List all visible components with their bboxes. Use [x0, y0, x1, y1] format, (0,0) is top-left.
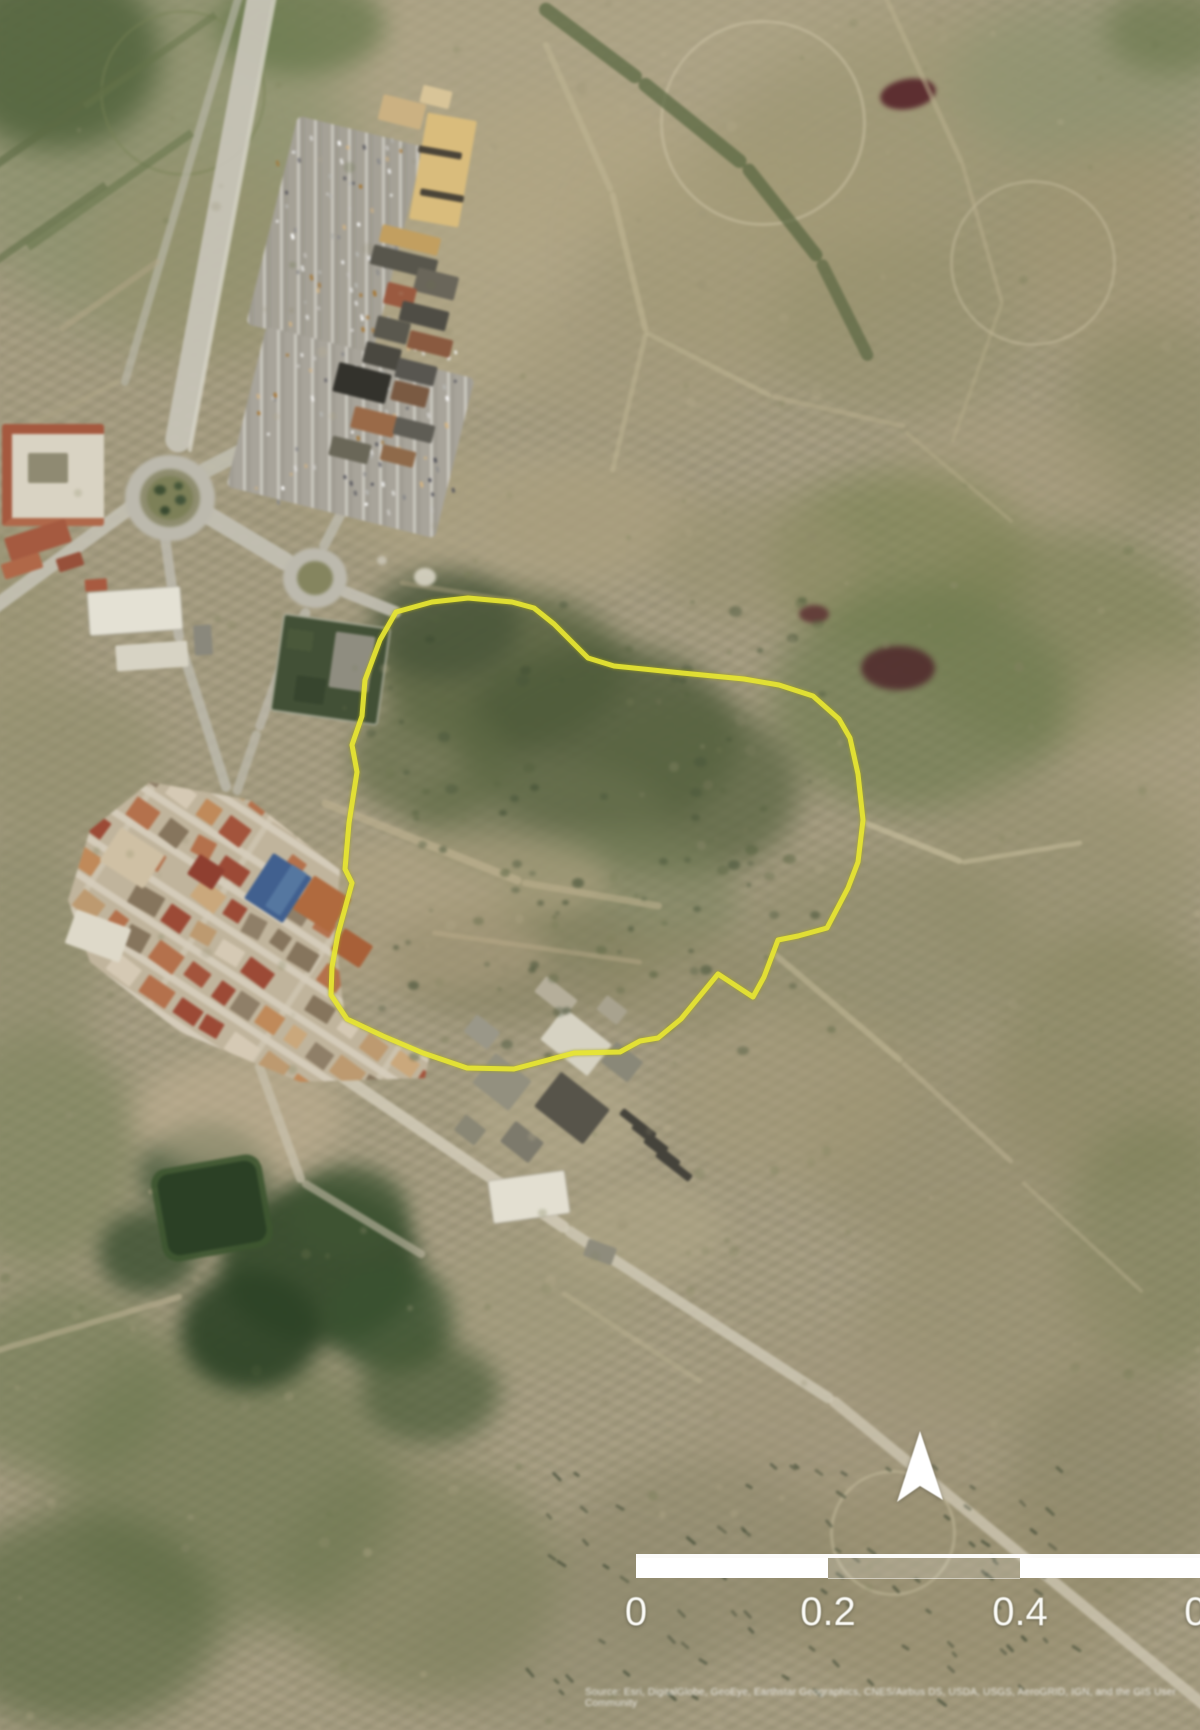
terrain-texture — [336, 1015, 361, 1040]
terrain-texture — [493, 781, 500, 787]
terrain-texture — [464, 570, 473, 579]
terrain-texture — [1189, 215, 1194, 220]
terrain-texture — [324, 378, 327, 383]
terrain-texture — [341, 14, 346, 19]
terrain-texture — [600, 925, 760, 1035]
terrain-texture — [291, 1574, 295, 1578]
terrain-texture — [175, 495, 186, 505]
terrain-texture — [735, 715, 746, 726]
terrain-texture — [176, 670, 180, 674]
terrain-texture — [251, 1365, 262, 1376]
terrain-texture — [17, 607, 20, 610]
terrain-texture — [562, 1437, 569, 1444]
terrain-texture — [351, 328, 354, 332]
terrain-texture — [506, 492, 512, 498]
scale-label: 0.6 — [1184, 1592, 1200, 1632]
terrain-texture — [10, 1176, 17, 1183]
terrain-texture — [233, 814, 236, 817]
terrain-texture — [162, 720, 166, 724]
terrain-texture — [147, 476, 193, 520]
terrain-texture — [737, 1046, 748, 1055]
terrain-texture — [656, 699, 662, 705]
terrain-texture — [520, 373, 525, 378]
terrain-texture — [272, 609, 282, 619]
terrain-texture — [360, 1227, 367, 1234]
terrain-texture — [497, 987, 502, 991]
terrain-texture — [764, 872, 774, 880]
terrain-texture — [835, 1102, 844, 1111]
terrain-texture — [685, 529, 693, 537]
terrain-texture — [601, 1396, 609, 1404]
terrain-texture — [85, 578, 108, 592]
terrain-texture — [439, 846, 447, 852]
terrain-texture — [157, 1651, 161, 1655]
terrain-texture — [158, 873, 162, 877]
terrain-texture — [441, 1036, 449, 1044]
terrain-texture — [837, 739, 844, 746]
terrain-texture — [861, 646, 935, 690]
terrain-texture — [502, 554, 505, 557]
terrain-texture — [917, 1589, 925, 1597]
terrain-texture — [156, 1507, 160, 1511]
terrain-texture — [343, 706, 346, 709]
terrain-texture — [536, 1699, 544, 1707]
terrain-texture — [849, 18, 858, 27]
terrain-texture — [606, 933, 616, 943]
terrain-texture — [659, 858, 668, 865]
terrain-texture — [363, 1548, 371, 1556]
terrain-texture — [537, 900, 544, 906]
terrain-texture — [770, 1616, 781, 1627]
terrain-texture — [974, 1509, 981, 1516]
terrain-texture — [370, 482, 373, 486]
terrain-texture — [409, 1052, 421, 1061]
terrain-texture — [102, 1199, 113, 1210]
terrain-texture — [418, 841, 427, 848]
terrain-texture — [87, 586, 184, 636]
terrain-texture — [779, 401, 785, 407]
terrain-texture — [757, 648, 763, 652]
terrain-texture — [715, 368, 721, 374]
terrain-texture — [752, 1638, 762, 1648]
terrain-texture — [781, 526, 788, 533]
terrain-texture — [697, 841, 705, 849]
terrain-texture — [812, 619, 824, 629]
terrain-texture — [1038, 1028, 1043, 1033]
terrain-texture — [712, 1716, 722, 1726]
terrain-texture — [180, 696, 184, 700]
terrain-texture — [377, 556, 387, 565]
terrain-texture — [769, 911, 779, 919]
terrain-texture — [61, 727, 65, 731]
terrain-texture — [730, 1510, 738, 1518]
terrain-texture — [18, 1596, 22, 1600]
terrain-texture — [477, 1709, 480, 1712]
terrain-texture — [216, 1019, 220, 1023]
terrain-texture — [1008, 999, 1018, 1009]
terrain-texture — [365, 490, 369, 495]
terrain-texture — [1159, 572, 1164, 577]
terrain-texture — [385, 145, 389, 151]
terrain-texture — [1097, 607, 1104, 614]
terrain-texture — [484, 1303, 491, 1310]
terrain-texture — [781, 1674, 791, 1681]
terrain-texture — [451, 1676, 455, 1680]
terrain-texture — [523, 763, 536, 773]
terrain-texture — [1057, 119, 1063, 125]
terrain-texture — [453, 46, 460, 53]
terrain-texture — [999, 835, 1005, 841]
terrain-texture — [293, 675, 326, 705]
terrain-texture — [592, 1132, 597, 1137]
terrain-texture — [276, 219, 279, 223]
terrain-texture — [1138, 787, 1147, 796]
terrain-texture — [366, 315, 369, 319]
terrain-texture — [211, 202, 220, 211]
terrain-texture — [694, 757, 707, 767]
terrain-texture — [1194, 1181, 1200, 1187]
terrain-texture — [510, 795, 519, 802]
terrain-texture — [929, 1196, 933, 1200]
terrain-texture — [861, 1344, 872, 1355]
terrain-texture — [327, 1682, 337, 1692]
terrain-texture — [380, 664, 389, 673]
terrain-texture — [369, 454, 373, 460]
terrain-texture — [296, 1685, 305, 1694]
terrain-texture — [1072, 1342, 1076, 1346]
terrain-texture — [414, 568, 436, 586]
terrain-texture — [317, 347, 327, 357]
terrain-texture — [284, 1392, 294, 1402]
terrain-texture — [690, 788, 701, 797]
terrain-texture — [649, 971, 658, 978]
terrain-texture — [1016, 831, 1019, 834]
terrain-texture — [345, 1054, 350, 1059]
terrain-texture — [789, 983, 797, 989]
terrain-texture — [93, 847, 101, 855]
terrain-texture — [501, 1040, 513, 1050]
terrain-texture — [484, 962, 490, 967]
terrain-texture — [808, 780, 812, 783]
terrain-texture — [1033, 1651, 1043, 1661]
terrain-texture — [1086, 816, 1092, 822]
terrain-texture — [158, 934, 164, 940]
terrain-texture — [845, 1486, 852, 1493]
terrain-texture — [182, 837, 189, 844]
terrain-texture — [1126, 1089, 1133, 1096]
terrain-texture — [545, 1718, 552, 1725]
terrain-texture — [285, 190, 288, 194]
terrain-texture — [940, 1616, 950, 1626]
terrain-texture — [659, 1510, 667, 1518]
terrain-texture — [690, 967, 699, 974]
terrain-texture — [544, 1053, 552, 1060]
terrain-texture — [528, 1132, 536, 1140]
terrain-texture — [609, 874, 617, 882]
terrain-texture — [679, 678, 687, 684]
terrain-texture — [947, 94, 957, 104]
terrain-texture — [693, 906, 700, 912]
terrain-texture — [878, 358, 885, 365]
terrain-texture — [286, 628, 315, 651]
terrain-texture — [582, 964, 589, 971]
terrain-texture — [425, 636, 435, 644]
terrain-texture — [444, 327, 453, 336]
terrain-texture — [296, 270, 299, 275]
terrain-texture — [294, 1627, 300, 1633]
terrain-texture — [181, 1544, 190, 1553]
scale-bar-segment — [1020, 1558, 1200, 1578]
terrain-texture — [328, 173, 332, 178]
terrain-texture — [628, 926, 635, 931]
terrain-texture — [386, 509, 390, 515]
terrain-texture — [698, 208, 707, 217]
terrain-texture — [822, 1146, 831, 1155]
terrain-texture — [770, 1166, 778, 1174]
terrain-texture — [801, 1380, 806, 1385]
terrain-texture — [297, 561, 333, 595]
terrain-texture — [694, 1168, 705, 1179]
terrain-texture — [1028, 723, 1035, 730]
terrain-texture — [684, 857, 691, 863]
terrain-texture — [378, 1005, 386, 1011]
terrain-texture — [375, 1088, 408, 1090]
terrain-texture — [783, 854, 796, 864]
terrain-texture — [511, 887, 519, 894]
terrain-texture — [283, 1024, 308, 1050]
terrain-texture — [575, 1212, 581, 1218]
terrain-texture — [115, 1356, 122, 1363]
terrain-texture — [454, 379, 457, 383]
terrain-texture — [956, 954, 966, 964]
terrain-texture — [813, 1324, 821, 1332]
scale-label: 0 — [625, 1592, 647, 1632]
terrain-texture — [107, 991, 114, 998]
terrain-texture — [130, 1326, 136, 1332]
satellite-imagery-layer — [0, 0, 1200, 1730]
terrain-texture — [625, 646, 634, 653]
terrain-texture — [1120, 418, 1126, 424]
terrain-texture — [186, 1699, 195, 1708]
terrain-texture — [682, 499, 686, 503]
terrain-texture — [1161, 341, 1172, 352]
terrain-texture — [19, 1268, 24, 1273]
terrain-texture — [663, 1124, 671, 1132]
terrain-texture — [304, 300, 307, 304]
terrain-texture — [27, 1721, 38, 1730]
terrain-texture — [163, 218, 168, 223]
terrain-texture — [418, 1703, 421, 1706]
terrain-texture — [686, 1286, 696, 1296]
terrain-texture — [227, 621, 236, 630]
terrain-texture — [892, 808, 897, 813]
terrain-texture — [1063, 335, 1067, 339]
terrain-texture — [661, 921, 668, 926]
terrain-texture — [810, 911, 820, 919]
terrain-texture — [553, 1007, 565, 1017]
terrain-texture — [180, 1270, 320, 1390]
scale-bar-segment — [828, 1558, 1020, 1579]
terrain-texture — [219, 184, 223, 188]
terrain-texture — [1106, 1587, 1112, 1593]
terrain-texture — [667, 1025, 674, 1030]
terrain-texture — [346, 145, 349, 149]
terrain-texture — [1123, 545, 1133, 555]
terrain-texture — [0, 1273, 10, 1283]
terrain-texture — [845, 1229, 851, 1235]
terrain-texture — [617, 1218, 628, 1229]
terrain-texture — [154, 485, 166, 495]
terrain-texture — [26, 1711, 34, 1719]
terrain-texture — [807, 1157, 815, 1165]
terrain-texture — [724, 1237, 731, 1244]
terrain-texture — [412, 810, 419, 816]
map-canvas: 0 0.2 0.4 0.6 Source: Esri, DigitalGlobe… — [0, 0, 1200, 1730]
terrain-texture — [670, 675, 680, 683]
terrain-texture — [834, 24, 838, 28]
terrain-texture — [1074, 402, 1080, 408]
terrain-texture — [347, 794, 353, 800]
terrain-texture — [726, 121, 737, 132]
terrain-texture — [617, 950, 622, 954]
terrain-texture — [187, 1514, 193, 1520]
north-arrow-icon — [897, 1431, 945, 1505]
north-arrow-shape — [897, 1431, 943, 1502]
terrain-texture — [573, 1472, 581, 1479]
terrain-texture — [950, 582, 957, 589]
terrain-texture — [726, 737, 732, 742]
terrain-texture — [222, 898, 248, 923]
terrain-texture — [448, 1485, 459, 1496]
terrain-texture — [473, 559, 478, 564]
terrain-texture — [445, 920, 456, 931]
terrain-texture — [430, 614, 441, 623]
terrain-texture — [742, 827, 749, 834]
terrain-texture — [318, 157, 323, 162]
terrain-texture — [275, 1519, 279, 1523]
terrain-texture — [120, 459, 124, 463]
terrain-texture — [641, 897, 646, 901]
terrain-texture — [1032, 393, 1038, 399]
terrain-texture — [779, 314, 789, 324]
terrain-texture — [590, 1251, 600, 1261]
terrain-texture — [328, 631, 375, 692]
terrain-texture — [516, 675, 529, 685]
terrain-texture — [275, 82, 282, 89]
terrain-texture — [785, 187, 792, 194]
terrain-texture — [512, 860, 522, 868]
terrain-texture — [745, 745, 756, 756]
terrain-texture — [131, 210, 139, 218]
terrain-texture — [683, 383, 689, 389]
terrain-texture — [500, 670, 512, 680]
terrain-texture — [545, 1513, 553, 1521]
terrain-texture — [742, 1370, 747, 1375]
terrain-texture — [529, 871, 536, 876]
scale-label: 0.2 — [800, 1592, 856, 1632]
scale-label: 0.4 — [992, 1592, 1048, 1632]
terrain-texture — [543, 267, 547, 271]
terrain-texture — [116, 437, 120, 441]
terrain-texture — [214, 615, 221, 622]
terrain-texture — [370, 208, 374, 213]
terrain-texture — [160, 506, 170, 515]
terrain-texture — [677, 1241, 680, 1244]
terrain-texture — [632, 1100, 635, 1103]
terrain-texture — [686, 1250, 691, 1255]
terrain-texture — [65, 1112, 72, 1119]
terrain-texture — [939, 32, 948, 41]
terrain-texture — [117, 1005, 145, 1033]
terrain-texture — [998, 602, 1006, 610]
terrain-texture — [47, 1499, 56, 1508]
terrain-texture — [933, 1624, 936, 1627]
terrain-texture — [78, 1304, 84, 1310]
terrain-texture — [669, 762, 679, 772]
terrain-texture — [382, 1003, 415, 1033]
terrain-texture — [646, 1127, 653, 1134]
attribution-line: Source: Esri, DigitalGlobe, GeoEye, Eart… — [585, 1687, 1200, 1698]
terrain-texture — [596, 946, 607, 955]
terrain-texture — [681, 665, 693, 675]
terrain-texture — [801, 1004, 807, 1010]
terrain-texture — [760, 806, 767, 811]
terrain-texture — [691, 814, 700, 821]
terrain-texture — [555, 1180, 725, 1280]
terrain-texture — [572, 878, 584, 887]
terrain-texture — [422, 789, 429, 795]
terrain-texture — [729, 1246, 740, 1257]
terrain-texture — [729, 606, 742, 616]
terrain-texture — [407, 1305, 413, 1311]
terrain-texture — [385, 767, 396, 778]
terrain-texture — [425, 944, 430, 949]
terrain-texture — [571, 946, 578, 953]
terrain-texture — [406, 406, 409, 410]
terrain-texture — [500, 869, 510, 877]
terrain-texture — [435, 979, 444, 988]
terrain-texture — [549, 1485, 553, 1489]
terrain-texture — [830, 1295, 834, 1299]
terrain-texture — [232, 729, 263, 796]
terrain-texture — [747, 861, 754, 866]
terrain-texture — [413, 1069, 440, 1090]
terrain-texture — [773, 946, 777, 949]
terrain-texture — [957, 1452, 968, 1463]
terrain-texture — [431, 522, 439, 530]
terrain-texture — [343, 176, 346, 180]
terrain-texture — [551, 1471, 561, 1481]
terrain-texture — [399, 720, 403, 723]
attribution-text: Source: Esri, DigitalGlobe, GeoEye, Eart… — [585, 1687, 1200, 1709]
terrain-texture — [539, 1469, 543, 1473]
terrain-texture — [325, 1253, 330, 1258]
terrain-texture — [1070, 1363, 1080, 1373]
terrain-texture — [115, 641, 189, 672]
terrain-texture — [634, 894, 638, 897]
terrain-texture — [712, 1412, 720, 1420]
terrain-texture — [329, 412, 336, 419]
terrain-texture — [268, 928, 292, 952]
terrain-texture — [192, 1275, 200, 1283]
terrain-texture — [541, 1283, 552, 1294]
terrain-texture — [488, 147, 494, 153]
terrain-texture — [713, 1661, 720, 1668]
terrain-texture — [267, 432, 270, 436]
terrain-texture — [1114, 1155, 1123, 1164]
terrain-texture — [504, 28, 511, 35]
terrain-texture — [716, 747, 721, 752]
